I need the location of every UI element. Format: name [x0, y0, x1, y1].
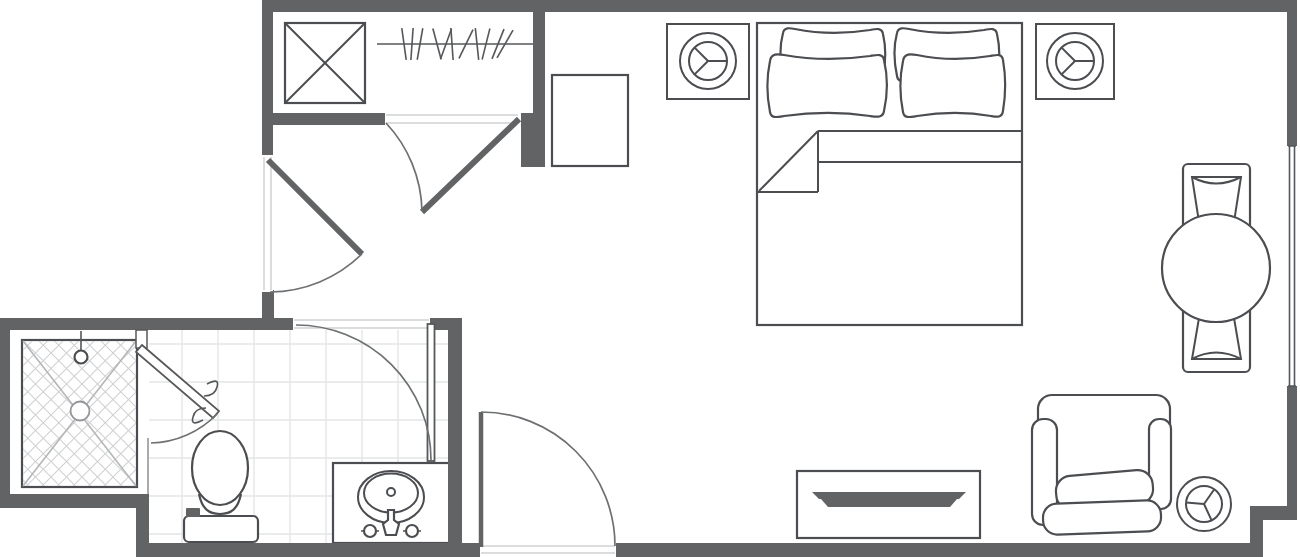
wall-bottom-right	[616, 543, 1263, 557]
floor-fixture-side-table	[1177, 477, 1231, 531]
door-leaf	[428, 324, 435, 461]
wall-bathroom-top	[0, 318, 293, 330]
dresser-cabinet	[552, 75, 628, 166]
toilet-tank	[184, 516, 258, 542]
wall-right-lower	[1287, 386, 1297, 514]
pillow	[900, 54, 1005, 117]
wall-bathroom-left	[0, 318, 10, 508]
right-wall-window	[1287, 146, 1297, 386]
faucet-handle-left	[364, 525, 376, 537]
double-bed	[757, 23, 1022, 325]
toilet-bowl	[192, 431, 248, 505]
wall-right-upper	[1287, 0, 1297, 146]
tv-base	[821, 499, 957, 507]
wall-bathroom-bottom-left	[0, 494, 149, 508]
wall-top	[262, 0, 1297, 12]
shower-head	[75, 351, 88, 364]
shower-drain	[71, 402, 90, 421]
opening-entry	[480, 543, 616, 557]
sink-vanity	[333, 463, 452, 543]
wall-bathroom-right	[448, 318, 462, 557]
wall-notch-vertical	[1250, 506, 1263, 557]
pillow	[767, 54, 887, 117]
tv-screen	[812, 492, 966, 499]
closet-shelf-unit	[285, 23, 365, 103]
faucet-handle-right	[406, 525, 418, 537]
wall-bottom-left	[136, 543, 480, 557]
armchair	[1032, 395, 1171, 535]
round-table	[1162, 214, 1270, 322]
tv-console	[797, 471, 980, 538]
floor-plan	[0, 0, 1300, 557]
armchair-front-cushion	[1043, 500, 1162, 535]
window-opening	[1287, 146, 1297, 386]
toilet-flush-handle	[186, 508, 200, 517]
wall-left-upper	[262, 0, 273, 157]
wall-closet-bottom	[262, 113, 385, 125]
wall-closet-partition-foot	[521, 113, 545, 167]
